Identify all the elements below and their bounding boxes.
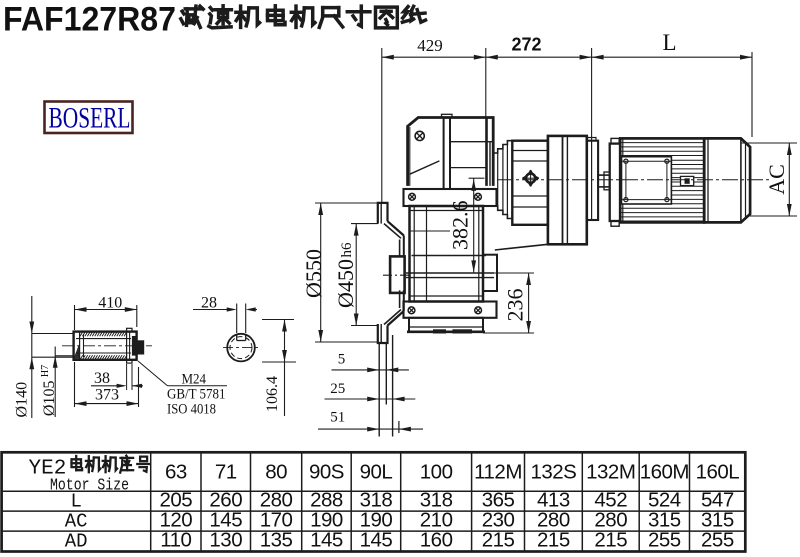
svg-text:Ø550: Ø550 [301, 249, 326, 298]
svg-text:L: L [70, 491, 81, 513]
svg-text:GB/T 5781: GB/T 5781 [167, 387, 226, 403]
svg-text:160: 160 [420, 529, 453, 552]
svg-text:373: 373 [95, 387, 119, 404]
svg-text:M24: M24 [182, 372, 207, 388]
svg-text:H7: H7 [40, 365, 51, 377]
svg-text:132S: 132S [530, 461, 576, 484]
svg-text:410: 410 [98, 294, 122, 311]
svg-text:215: 215 [482, 529, 515, 552]
svg-text:Ø105: Ø105 [41, 381, 58, 417]
svg-text:100: 100 [420, 461, 453, 484]
svg-text:ISO 4018: ISO 4018 [167, 402, 216, 418]
svg-text:AD: AD [65, 531, 88, 553]
svg-text:145: 145 [360, 529, 393, 552]
svg-text:272: 272 [511, 35, 541, 55]
svg-text:160L: 160L [696, 461, 740, 484]
svg-text:255: 255 [648, 529, 681, 552]
svg-text:25: 25 [330, 381, 345, 397]
svg-text:110: 110 [160, 529, 191, 552]
svg-text:90L: 90L [360, 461, 393, 484]
svg-text:L: L [662, 30, 676, 55]
svg-text:112M: 112M [474, 461, 522, 484]
svg-text:BOSERL: BOSERL [49, 102, 131, 135]
svg-text:5: 5 [338, 352, 346, 368]
svg-text:38: 38 [94, 370, 110, 387]
svg-text:FAF127R87: FAF127R87 [3, 1, 176, 39]
svg-text:Ø450: Ø450 [333, 259, 358, 308]
svg-text:106.4: 106.4 [264, 376, 281, 412]
svg-text:Motor Size: Motor Size [50, 477, 129, 496]
svg-text:236: 236 [503, 289, 528, 322]
svg-text:145: 145 [310, 529, 343, 552]
svg-text:130: 130 [209, 529, 242, 552]
svg-text:255: 255 [701, 529, 734, 552]
svg-text:Ø140: Ø140 [14, 382, 31, 418]
svg-text:135: 135 [260, 529, 293, 552]
svg-text:71: 71 [215, 461, 237, 484]
svg-text:215: 215 [594, 529, 627, 552]
svg-text:215: 215 [537, 529, 570, 552]
svg-text:90S: 90S [309, 461, 344, 484]
svg-text:28: 28 [201, 294, 217, 311]
svg-text:63: 63 [165, 461, 187, 484]
svg-text:51: 51 [330, 410, 345, 426]
svg-text:429: 429 [417, 36, 443, 55]
svg-text:382.6: 382.6 [448, 200, 473, 250]
svg-text:AC: AC [764, 164, 789, 195]
svg-text:132M: 132M [586, 461, 635, 484]
svg-text:80: 80 [265, 461, 287, 484]
svg-text:160M: 160M [640, 461, 689, 484]
svg-text:h6: h6 [339, 242, 355, 258]
svg-text:AC: AC [65, 511, 88, 533]
